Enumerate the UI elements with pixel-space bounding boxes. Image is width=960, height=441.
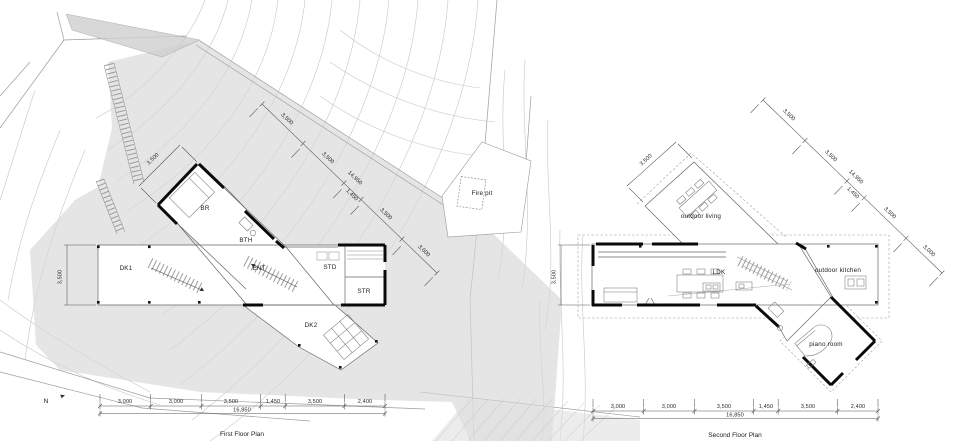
- dim-sf-depth: 3,500: [552, 270, 558, 285]
- dim-ff-bottom-total: 16,850: [233, 408, 251, 414]
- room-label-bth: BTH: [239, 237, 252, 244]
- room-label-str: STR: [357, 288, 370, 295]
- room-label-ldk: LDK: [713, 269, 726, 276]
- dim-sf-bottom-1: 3,000: [611, 404, 626, 410]
- room-label-br: BR: [200, 205, 209, 212]
- room-label-outdoor-living: outdoor living: [681, 213, 722, 220]
- dim-sf-bottom-3: 3,500: [717, 404, 732, 410]
- dim-ff-bottom-2: 3,000: [169, 399, 184, 405]
- floor-plan-sheet: BR BTH DK1 ENT STD STR DK2 Fire pit 3,50…: [0, 0, 960, 441]
- terrain-main: [30, 40, 562, 441]
- room-label-ent: ENT: [252, 265, 265, 272]
- dim-sf-bottom-6: 2,400: [851, 404, 866, 410]
- dim-sf-bottom-2: 3,000: [662, 404, 677, 410]
- dim-sf-bottom-5: 3,500: [801, 404, 816, 410]
- dim-sf-diag-2: 3,500: [823, 149, 838, 163]
- dim-ff-bottom-1: 3,000: [118, 399, 133, 405]
- room-label-dk2: DK2: [305, 322, 318, 329]
- floor-plan-drawing: BR BTH DK1 ENT STD STR DK2 Fire pit 3,50…: [0, 0, 960, 441]
- dim-sf-diag-total: 14,950: [847, 169, 864, 186]
- north-label: N: [44, 398, 49, 405]
- dim-ff-bottom-5: 3,500: [308, 399, 323, 405]
- caption-first-floor: First Floor Plan: [220, 431, 264, 438]
- terrain-shading: [30, 14, 640, 441]
- dim-sf-diag-5: 3,000: [921, 244, 936, 258]
- dim-ff-bottom-3: 3,500: [224, 399, 239, 405]
- dim-sf-diag-1: 3,500: [781, 108, 796, 122]
- caption-second-floor: Second Floor Plan: [708, 432, 762, 439]
- room-label-dk1: DK1: [120, 265, 133, 272]
- room-label-piano-room: piano room: [809, 341, 843, 348]
- dim-ff-bottom-6: 2,400: [358, 399, 373, 405]
- dim-sf-wing: 3,500: [639, 153, 654, 167]
- dim-sf-diag-4: 3,500: [882, 206, 897, 220]
- dim-sf-diag-3: 1,450: [845, 186, 860, 200]
- dim-ff-bottom-4: 1,450: [266, 399, 281, 405]
- dim-ff-depth: 3,500: [58, 270, 64, 285]
- room-label-outdoor-kitchen: outdoor kitchen: [815, 267, 861, 274]
- dim-sf-bottom-4: 1,450: [759, 404, 774, 410]
- room-label-fire-pit: Fire pit: [472, 190, 493, 197]
- dim-sf-bottom-total: 16,850: [726, 413, 744, 419]
- room-label-std: STD: [323, 264, 336, 271]
- north-arrow-icon: [52, 395, 65, 401]
